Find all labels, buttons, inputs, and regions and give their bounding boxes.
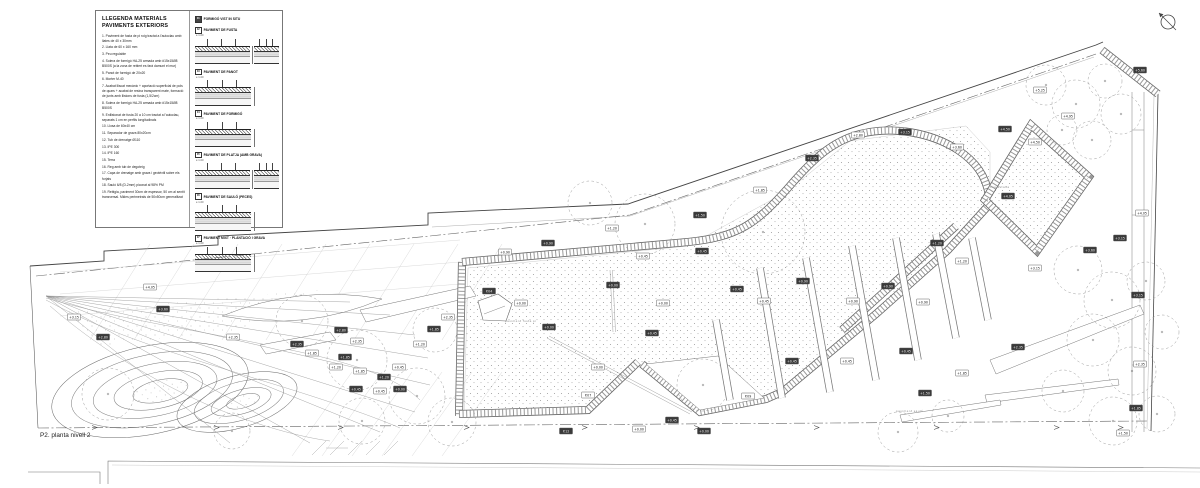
legend-item: 6. Morter M-40 — [102, 77, 185, 82]
elevation-value: P.07 — [585, 393, 592, 397]
pavement-section-graphic — [195, 122, 251, 148]
elevation-value: +0.00 — [544, 325, 554, 329]
elevation-value: +3.15 — [1030, 266, 1040, 270]
elevation-value: +5.25 — [1035, 88, 1045, 92]
detail-title: PAVIMENT DE FUSTA — [204, 28, 238, 32]
surface-label: paviment fusta pi — [505, 319, 536, 323]
tree-canopy — [428, 398, 476, 446]
elevation-value: +1.20 — [379, 375, 389, 379]
legend-item: 5. Panot de formigó de 20x20 — [102, 71, 185, 76]
elevation-value: +0.00 — [658, 301, 668, 305]
ramps-southeast — [900, 305, 1144, 422]
elevation-value: +1.85 — [340, 355, 350, 359]
legend-item: 7. Acabat lliscat mecànic + aportació su… — [102, 84, 185, 99]
tree-canopy — [82, 368, 134, 420]
elevation-value: +0.00 — [699, 429, 709, 433]
legend-items: 1. Paviment de fusta de pi roig tractat … — [102, 34, 185, 201]
legend-detail: 06PAVIMENT DE SAULÓ (PECES)e 1:20 — [195, 193, 279, 230]
direction-arrow — [1054, 426, 1059, 430]
detail-title: PAVIMENT DE PLATJA (AMB GRAVA) — [204, 153, 262, 157]
drawing-sheet: +4.05+3.60+3.15+2.80+2.35+2.35+1.85+2.80… — [0, 0, 1200, 488]
elevation-value: +0.90 — [918, 300, 928, 304]
detail-title: PAVIMENT MIXT · PLANTACIÓ I GRAVA — [204, 236, 265, 240]
elevation-value: +4.50 — [1030, 140, 1040, 144]
elevation-value: +0.45 — [375, 389, 385, 393]
elevation-value: +3.60 — [1085, 248, 1095, 252]
elevation-value: +0.00 — [593, 365, 603, 369]
elevation-value: +0.45 — [394, 365, 404, 369]
tree-canopy — [339, 398, 385, 444]
legend-item: 4. Solera de formigó HA-25 armada amb #1… — [102, 59, 185, 69]
detail-number: 02 — [195, 27, 202, 34]
detail-number: 05 — [195, 152, 202, 159]
elevation-value: +3.15 — [900, 130, 910, 134]
elevation-value: +2.35 — [443, 315, 453, 319]
elevation-value: +3.15 — [69, 315, 79, 319]
legend-item: 1. Paviment de fusta de pi roig tractat … — [102, 34, 185, 44]
pavement-section-graphic — [195, 39, 250, 65]
legend-item: 2. Llata de 60 x 160 mm — [102, 45, 185, 50]
detail-title: PAVIMENT DE FORMIGÓ — [204, 112, 243, 116]
elevation-value: +0.00 — [608, 283, 618, 287]
tree-canopy — [1047, 115, 1077, 145]
elevation-value: +1.50 — [1118, 431, 1128, 435]
elevation-value: +0.90 — [500, 250, 510, 254]
legend-detail: 05PAVIMENT DE PLATJA (AMB GRAVA)e 1:20 — [195, 152, 279, 189]
legend-detail: 02PAVIMENT DE FUSTAe 1:20 — [195, 27, 279, 64]
deck-slat — [972, 238, 988, 320]
elevation-value: +1.50 — [920, 391, 930, 395]
detail-title: PAVIMENT DE PANOT — [204, 70, 238, 74]
elevation-value: +3.60 — [952, 145, 962, 149]
elevation-value: +0.45 — [901, 349, 911, 353]
legend-item: 17. Capa de drenatge amb grava i geotèxt… — [102, 171, 185, 181]
elevation-value: +0.45 — [787, 359, 797, 363]
legend-item: 13. IPE 300 — [102, 145, 185, 150]
elevation-value: +2.80 — [98, 335, 108, 339]
elevation-value: +1.50 — [695, 213, 705, 217]
tree-canopy — [1026, 65, 1066, 105]
elevation-value: +4.05 — [145, 285, 155, 289]
elevation-value: +1.20 — [331, 365, 341, 369]
legend-detail: 07PAVIMENT MIXT · PLANTACIÓ I GRAVAe 1:2… — [195, 235, 279, 272]
legend-item: 11. Separador de grava 80x20cm — [102, 131, 185, 136]
elevation-value: +4.95 — [1063, 114, 1073, 118]
legend-item: 12. Tub de drenatge Ø110 — [102, 138, 185, 143]
elevation-value: +4.50 — [1000, 127, 1010, 131]
elevation-value: +4.05 — [1137, 211, 1147, 215]
elevation-value: +0.45 — [759, 299, 769, 303]
legend-item: 8. Solera de formigó HA-25 armada amb #1… — [102, 101, 185, 111]
direction-arrow — [1118, 426, 1123, 430]
elevation-value: +1.85 — [355, 369, 365, 373]
elevation-value: +5.60 — [1135, 68, 1145, 72]
surface-label: paviment sauló — [896, 409, 923, 413]
elevation-value: +3.60 — [158, 307, 168, 311]
elevation-value: +1.20 — [607, 226, 617, 230]
legend-item: 18. Sauló 6/8 (D-2mm) piconat al 98% PM — [102, 183, 185, 188]
elevation-value: +1.85 — [307, 351, 317, 355]
elevation-value: +1.20 — [957, 259, 967, 263]
direction-arrow — [814, 426, 819, 430]
elevation-value: +0.00 — [395, 387, 405, 391]
detail-title: PAVIMENT DE SAULÓ (PECES) — [204, 195, 253, 199]
pavement-section-graphic — [254, 39, 279, 65]
promenade-band — [459, 262, 462, 416]
direction-arrow — [214, 426, 219, 430]
elevation-value: +0.45 — [732, 287, 742, 291]
tree-canopy — [1139, 396, 1175, 432]
elevation-value: +1.20 — [932, 241, 942, 245]
promenade-band — [1102, 50, 1158, 94]
legend-item: 15. Terra — [102, 158, 185, 163]
pavement-section-graphic — [195, 163, 250, 189]
detail-number: 07 — [195, 235, 202, 242]
pavement-section-graphic — [254, 163, 279, 189]
legend-item: 3. Peu regulable — [102, 52, 185, 57]
legend-item: 14. IPE 160 — [102, 151, 185, 156]
elevation-value: +1.20 — [415, 342, 425, 346]
tree-canopy — [1088, 64, 1122, 98]
pavement-section-graphic — [195, 80, 251, 106]
elevation-value: +0.90 — [848, 299, 858, 303]
elevation-value: +4.05 — [1003, 194, 1013, 198]
legend-item: 19. Reblgia, paviment 30cm de espessor, … — [102, 190, 185, 200]
elevation-value: P.12 — [563, 429, 570, 433]
elevation-value: P.09 — [745, 394, 752, 398]
materials-legend: LLEGENDA MATERIALS PAVIMENTS EXTERIORS 1… — [95, 10, 283, 228]
elevation-value: +0.45 — [697, 249, 707, 253]
tree-canopy — [1073, 121, 1111, 159]
pavement-section-graphic — [195, 205, 251, 231]
elevation-value: P.04 — [486, 289, 493, 293]
elevation-value: +0.45 — [667, 418, 677, 422]
elevation-value: +1.85 — [429, 327, 439, 331]
tree-canopy — [214, 413, 250, 449]
legend-item: 9. Enllistonat de fusta 20 a 10 cm tract… — [102, 113, 185, 123]
elevation-value: +0.90 — [543, 241, 553, 245]
elevation-value: +1.85 — [1131, 406, 1141, 410]
elevation-value: +1.85 — [957, 371, 967, 375]
legend-item: 10. Llosa de 60x40 cm — [102, 124, 185, 129]
elevation-value: +3.15 — [1133, 293, 1143, 297]
direction-arrow — [464, 426, 469, 430]
surface-label: zona estada — [988, 185, 1009, 189]
elevation-value: +0.90 — [883, 284, 893, 288]
legend-item: 16. Reg amb tub de degoteig — [102, 165, 185, 170]
detail-number: 06 — [195, 193, 202, 200]
north-arrow-icon — [1159, 13, 1176, 30]
detail-number: 04 — [195, 110, 202, 117]
elevation-value: +2.35 — [1013, 345, 1023, 349]
elevation-value: +0.00 — [634, 427, 644, 431]
elevation-value: +2.35 — [292, 342, 302, 346]
street-curb — [28, 441, 1200, 484]
tree-canopy — [1145, 315, 1179, 349]
elevation-value: +0.45 — [638, 254, 648, 258]
legend-detail: 04PAVIMENT DE FORMIGÓe 1:20 — [195, 110, 279, 147]
sheet-caption: P2. planta nivell 2 — [40, 432, 90, 439]
legend-detail: 03PAVIMENT DE PANOTe 1:20 — [195, 69, 279, 106]
elevation-value: +2.35 — [807, 156, 817, 160]
elevation-value: +0.00 — [516, 301, 526, 305]
east-footpath — [1132, 92, 1144, 432]
elevation-value: +2.80 — [336, 328, 346, 332]
tree-canopy — [389, 368, 445, 424]
direction-arrow — [582, 426, 587, 430]
elevation-value: +0.90 — [798, 279, 808, 283]
detail-title: FORMIGÓ VIST IN SITU — [204, 17, 241, 21]
detail-number: 01 — [195, 16, 202, 23]
tree-canopy — [1089, 397, 1137, 445]
elevation-value: +2.35 — [228, 335, 238, 339]
elevation-value: +2.80 — [853, 133, 863, 137]
legend-detail: 01FORMIGÓ VIST IN SITU — [195, 16, 279, 23]
legend-details: 01FORMIGÓ VIST IN SITU02PAVIMENT DE FUST… — [189, 11, 282, 227]
elevation-value: +1.85 — [755, 188, 765, 192]
elevation-value: +2.35 — [1135, 362, 1145, 366]
tree-canopy — [1052, 80, 1100, 128]
elevation-value: +2.35 — [352, 339, 362, 343]
detail-number: 03 — [195, 69, 202, 76]
elevation-value: +3.15 — [1115, 236, 1125, 240]
elevation-value: +0.45 — [842, 359, 852, 363]
elevation-value: +0.45 — [351, 387, 361, 391]
pavement-section-graphic — [195, 247, 251, 273]
legend-title: LLEGENDA MATERIALS PAVIMENTS EXTERIORS — [102, 16, 185, 30]
elevation-value: +0.45 — [647, 331, 657, 335]
